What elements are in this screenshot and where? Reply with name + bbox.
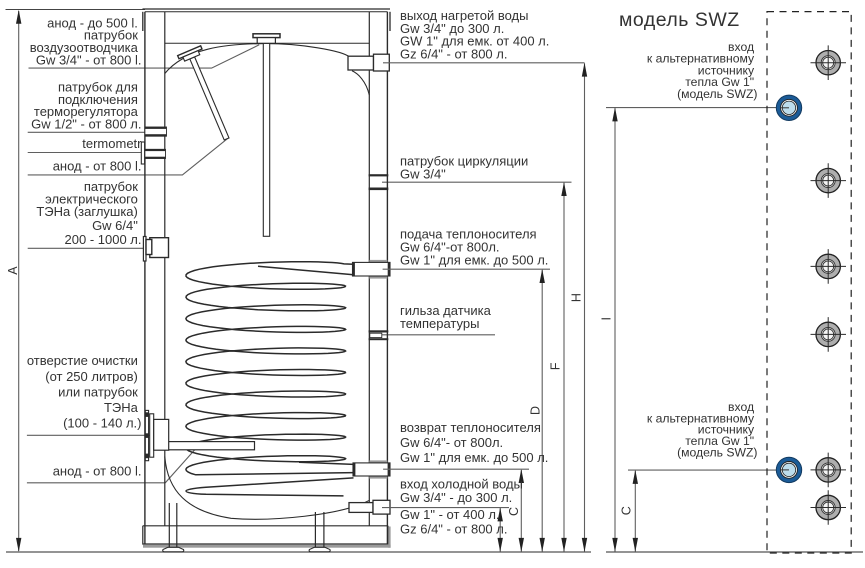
svg-text:I: I xyxy=(600,317,614,320)
svg-text:анод - от 800 l.: анод - от 800 l. xyxy=(53,464,142,479)
svg-text:termometr: termometr xyxy=(82,136,142,151)
svg-text:анод - от 800 l.: анод - от 800 l. xyxy=(53,159,142,174)
svg-text:F: F xyxy=(549,362,563,370)
svg-text:D: D xyxy=(528,406,542,415)
svg-text:A: A xyxy=(6,266,20,275)
svg-text:модель SWZ: модель SWZ xyxy=(619,9,740,31)
svg-text:анод - до 500 l. патрубок возд: анод - до 500 l. патрубок воздузоотводчи… xyxy=(30,15,142,67)
svg-text:C: C xyxy=(619,506,633,515)
svg-text:H: H xyxy=(570,293,584,302)
svg-text:C: C xyxy=(507,507,521,516)
